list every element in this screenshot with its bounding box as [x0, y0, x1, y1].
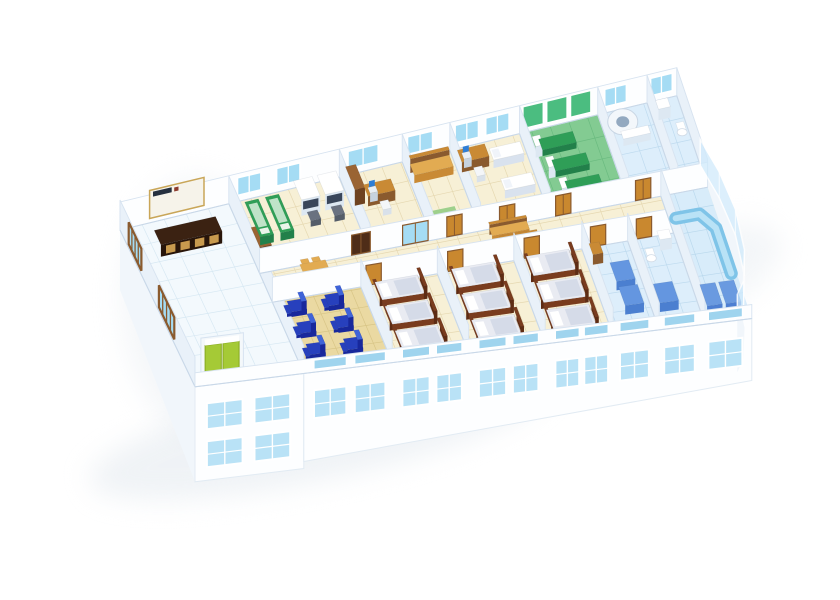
ct-scanner-bore: [616, 116, 629, 127]
bed-headboard-front: [500, 274, 503, 288]
bed-headboard-front: [575, 262, 578, 276]
wood-cabinet-front: [355, 188, 365, 206]
infusion-recliner-back-front: [311, 322, 316, 336]
bed-headboard-front: [510, 300, 513, 314]
sink-unit-top: [657, 229, 672, 240]
bed-headboard-front: [424, 286, 427, 300]
toilet-bowl: [677, 129, 687, 136]
toilet-bowl: [646, 255, 656, 262]
sink-unit-front: [660, 238, 672, 251]
infusion-recliner-back-front: [348, 317, 353, 331]
physio-wall-panel: [547, 96, 567, 123]
infusion-recliner-back-front: [302, 301, 307, 315]
infusion-recliner-back-front: [358, 339, 363, 353]
infusion-recliner-back-front: [320, 344, 325, 358]
bed-headboard-front: [585, 289, 588, 303]
infusion-recliner-back-front: [339, 295, 344, 309]
physio-wall-panel: [571, 90, 591, 117]
floorplan-svg: [0, 0, 840, 600]
hospital-floorplan-stage: [0, 0, 840, 600]
bed-headboard-front: [434, 311, 437, 325]
nightstand-front: [593, 253, 603, 265]
corridor-door: [636, 216, 651, 239]
